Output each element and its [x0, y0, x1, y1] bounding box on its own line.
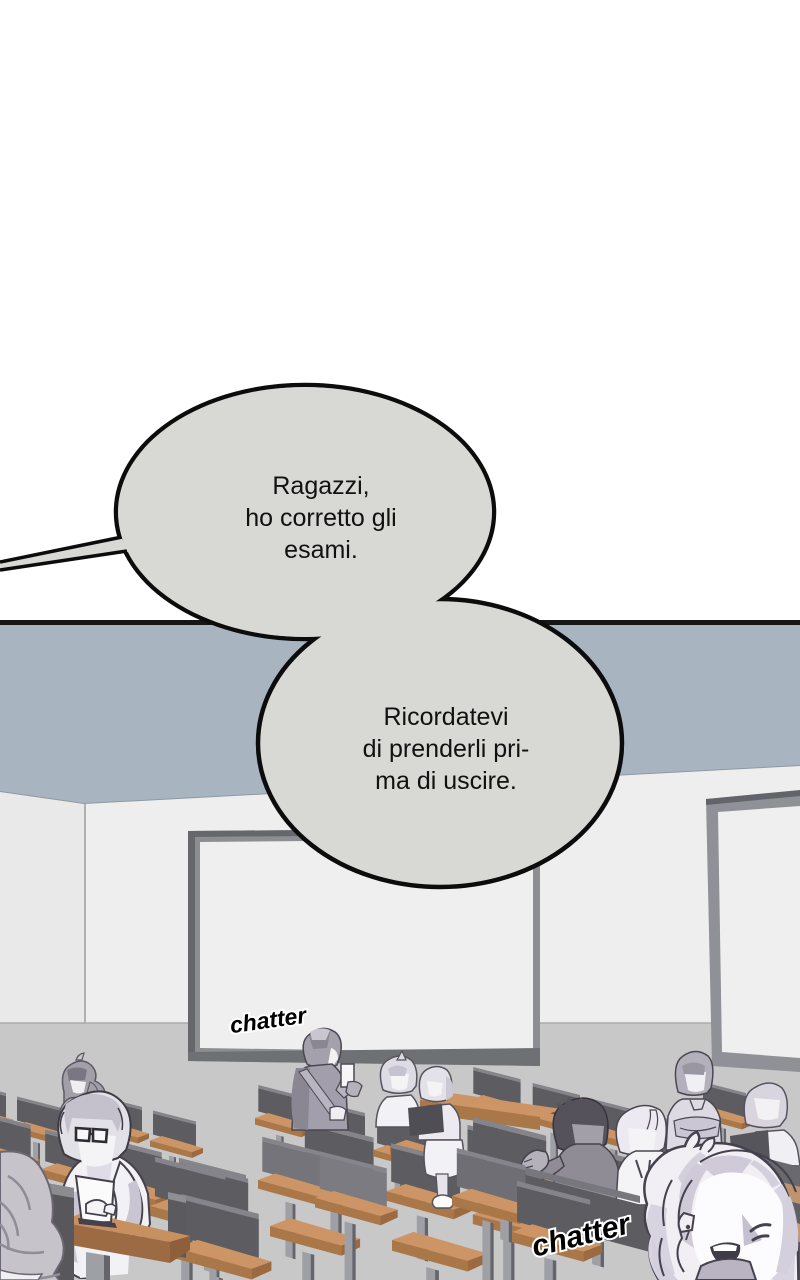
svg-text:ma di uscire.: ma di uscire.: [375, 767, 517, 795]
svg-text:di prenderli pri-: di prenderli pri-: [363, 735, 530, 763]
svg-text:Ragazzi,: Ragazzi,: [272, 472, 369, 500]
svg-text:ho corretto gli: ho corretto gli: [245, 504, 396, 532]
svg-text:Ricordatevi: Ricordatevi: [383, 703, 508, 731]
svg-text:esami.: esami.: [284, 536, 358, 564]
